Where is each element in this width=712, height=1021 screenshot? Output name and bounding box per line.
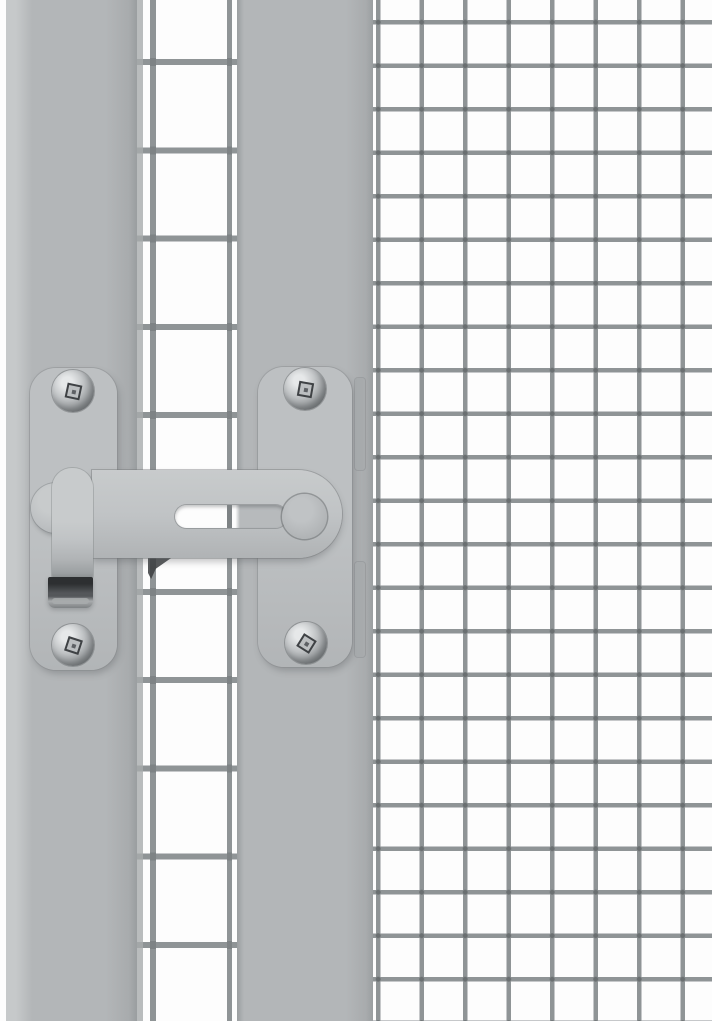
latch-adjustment-slot bbox=[175, 505, 287, 528]
screw-drive-recess bbox=[296, 380, 313, 397]
screw-bottom-right bbox=[285, 622, 327, 664]
keeper-strip-bottom bbox=[355, 562, 365, 657]
screw-drive-recess bbox=[64, 636, 83, 655]
screw-bottom-left bbox=[52, 624, 94, 666]
screw-drive-dot bbox=[303, 387, 308, 392]
screw-drive-recess bbox=[64, 382, 82, 400]
latch-handle-sheen bbox=[52, 598, 89, 604]
screw-drive-dot bbox=[71, 389, 76, 394]
keeper-strip-top bbox=[355, 378, 365, 470]
screw-drive-dot bbox=[303, 640, 309, 646]
latch-knob bbox=[282, 494, 327, 539]
latch-handle bbox=[48, 577, 93, 608]
latch-pivot-arm bbox=[52, 468, 93, 580]
screw-top-right bbox=[284, 368, 326, 410]
mesh-wire-through-slot bbox=[227, 505, 232, 528]
screw-top-left bbox=[52, 370, 94, 412]
gate-latch-product-photo bbox=[0, 0, 712, 1021]
cage-mesh-panel bbox=[373, 0, 712, 1021]
screw-drive-dot bbox=[70, 642, 75, 647]
screw-drive-recess bbox=[296, 633, 317, 654]
